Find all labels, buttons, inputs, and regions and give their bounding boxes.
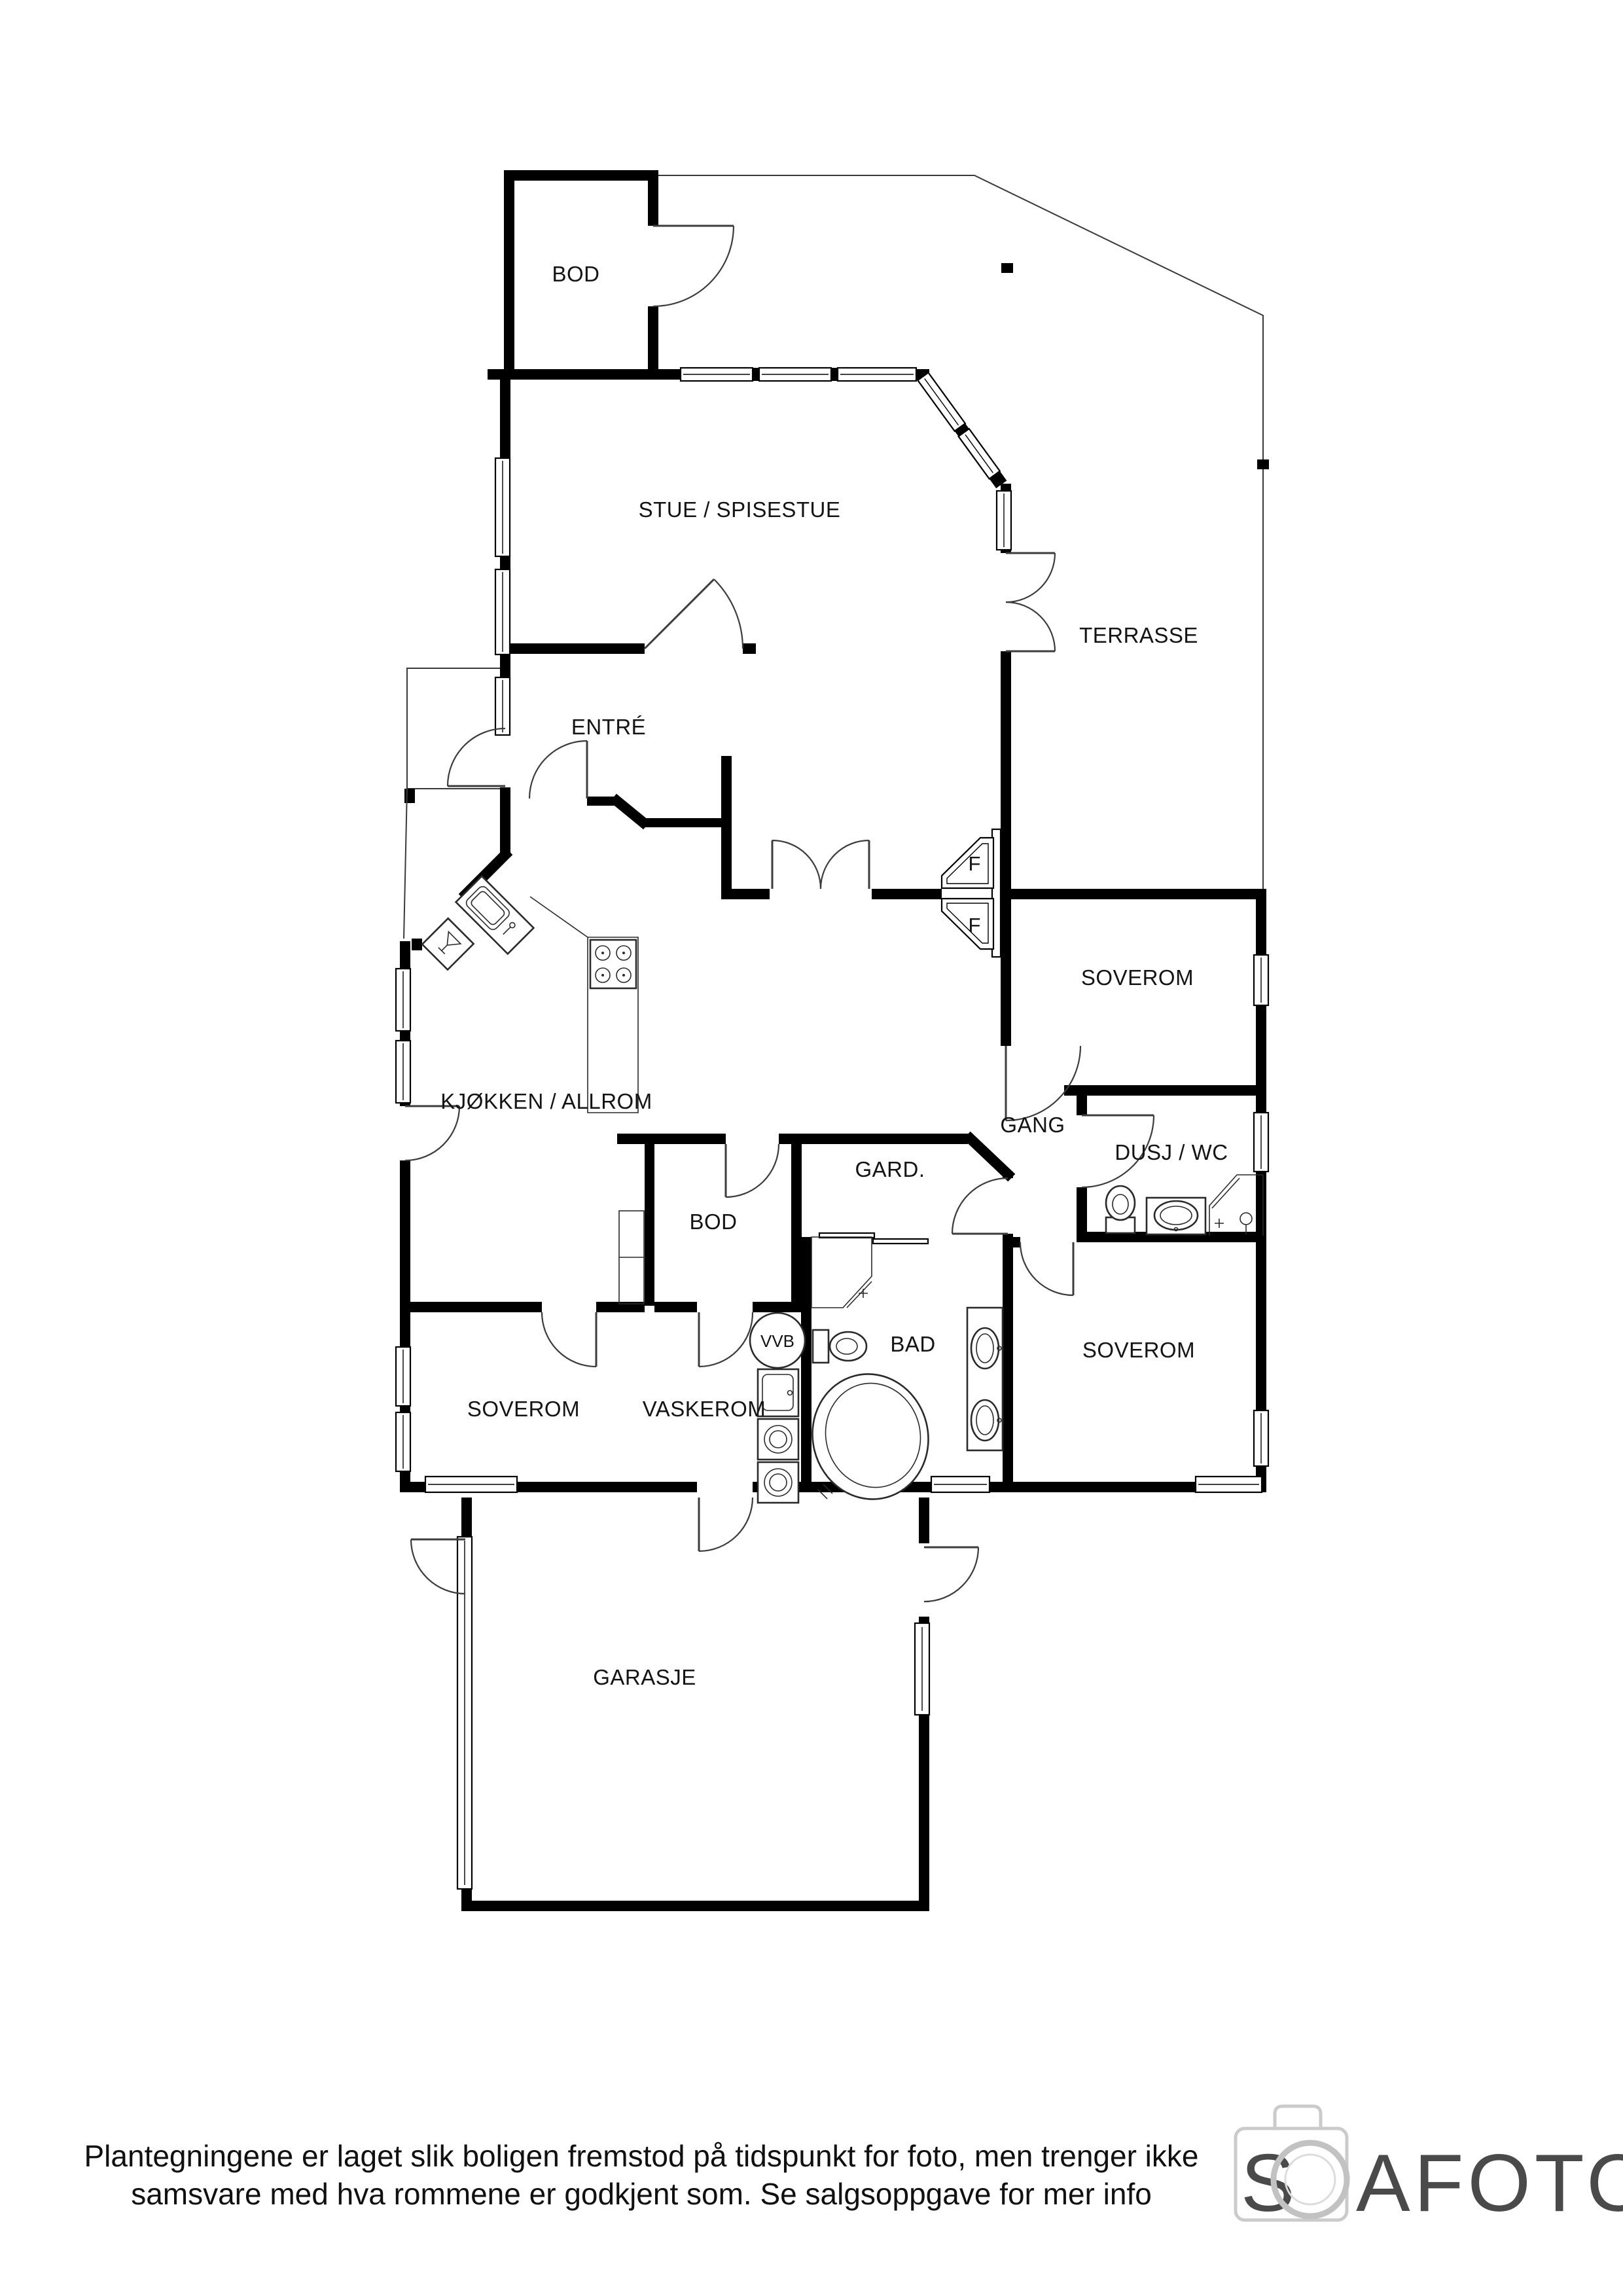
kitchen-counter [530,897,638,1113]
room-label-gang: GANG [1000,1113,1065,1137]
room-label-bod-top: BOD [552,262,599,286]
f-bay-windows: F F [942,829,1001,957]
water-heater-icon: VVB [750,1313,805,1368]
double-vanity-icon [967,1308,1003,1450]
f-window-label: F [969,852,981,875]
double-door-stue-gang [772,840,869,889]
bay-windows [918,372,1007,488]
f-window-label: F [969,914,981,937]
logo: S AFOTO [1236,2106,1623,2229]
toilet-bad-icon [813,1330,866,1363]
door-front-entrance [448,728,505,786]
dryer-icon [758,1462,798,1503]
room-label-bod-indre: BOD [689,1210,737,1234]
room-label-kjokken: KJØKKEN / ALLROM [440,1089,652,1113]
shower-dusj-icon [1209,1175,1263,1236]
room-label-garasje: GARASJE [593,1665,696,1689]
floor-plan-page: F F [0,0,1623,2296]
door-soverom-vest [542,1312,596,1367]
terrasse-boundary [658,175,1269,894]
shelving [619,1211,644,1304]
french-doors-terrasse [1006,553,1055,651]
door-soverom-ost [1006,1046,1080,1121]
svg-text:VVB: VVB [760,1331,794,1351]
door-soverom-sor [1020,1242,1073,1295]
terrasse-post [1257,459,1269,469]
room-label-soverom-ost: SOVEROM [1081,965,1194,990]
door-vaskerom [699,1312,753,1367]
room-label-bad: BAD [890,1332,935,1356]
floor-plan-canvas: F F [0,0,1623,2296]
room-label-stue: STUE / SPISESTUE [639,497,841,522]
door-allrom-vest [405,1106,459,1160]
room-label-vaskerom: VASKEROM [643,1397,766,1421]
room-label-gard: GARD. [855,1157,925,1181]
cooktop-icon [590,940,636,988]
gard-diagonal-wall [971,1139,1008,1174]
room-label-soverom-sor: SOVEROM [1082,1338,1195,1362]
room-label-soverom-vest: SOVEROM [467,1397,580,1421]
sliding-door-gard [819,1233,928,1244]
f-window-lower [942,899,993,949]
washing-machine-icon [758,1419,798,1460]
door-bad [952,1178,1008,1234]
entre-jog-wall [617,801,643,822]
door-entre-kitchen [529,741,587,798]
shower-bad-icon [811,1237,872,1308]
terrasse-post [1001,263,1013,273]
dishwasher-icon [422,918,473,969]
door-hall-garasje [699,1498,753,1551]
room-label-dusj-wc: DUSJ / WC [1115,1140,1228,1164]
door-bod-top [653,226,734,306]
door-bod-indre [726,1144,779,1197]
door-garasje-ost [924,1547,978,1602]
toilet-dusj-icon [1106,1186,1135,1233]
disclaimer-line2: samsvare med hva rommene er godkjent som… [131,2177,1152,2211]
windows [396,368,1268,1889]
disclaimer: Plantegningene er laget slik boligen fre… [84,2139,1199,2211]
room-label-terrasse: TERRASSE [1079,623,1198,647]
sink-dusj-icon [1147,1198,1205,1234]
walls [400,170,1266,1911]
disclaimer-line1: Plantegningene er laget slik boligen fre… [84,2139,1199,2173]
door-entre-stue [645,579,743,649]
room-label-entre: ENTRÉ [571,715,646,739]
f-window-upper [942,838,993,888]
logo-text-afoto: AFOTO [1356,2138,1623,2229]
